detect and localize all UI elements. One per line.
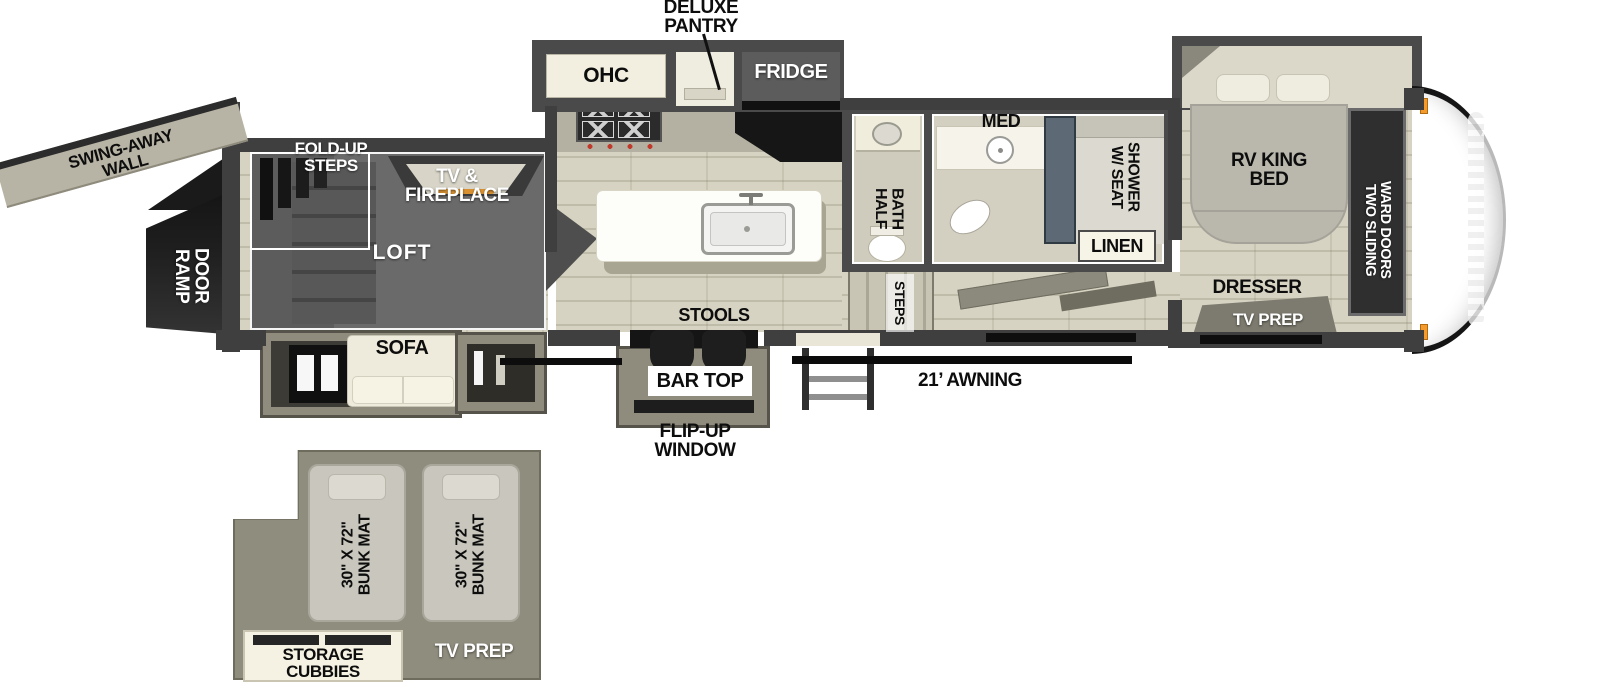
bar-bottom-counter <box>634 400 754 413</box>
fridge: FRIDGE <box>742 52 840 110</box>
sofa-slide-window <box>289 345 347 403</box>
bottom-wall-door-left <box>764 330 796 346</box>
bunk-mat-1-label: 30" X 72" BUNK MAT <box>308 496 406 614</box>
tv-fireplace-label: TV & FIREPLACE <box>390 162 524 210</box>
bedroom-left-wall-lower <box>1168 300 1182 348</box>
rear-compartment <box>455 332 547 414</box>
sofa-seat-split <box>402 376 404 404</box>
shower-seat-label: SHOWER W/ SEAT <box>1094 118 1154 236</box>
awning-line <box>792 356 1132 364</box>
half-bath-label: HALF BATH <box>866 166 910 252</box>
ohc-cabinet: OHC <box>546 54 666 98</box>
island-sink <box>701 203 795 255</box>
loft-label: LOFT <box>360 240 444 266</box>
kitchen-island <box>596 190 822 262</box>
storage-cubbies-label: STORAGE CUBBIES <box>245 644 401 682</box>
bedroom-wall-window <box>1200 335 1322 344</box>
front-cap <box>1412 86 1506 354</box>
compartment-window-1 <box>474 351 483 385</box>
entry-door-threshold <box>796 330 880 346</box>
pantry-shelf <box>684 88 726 100</box>
frontcap-join-top <box>1404 88 1424 110</box>
burner-3 <box>582 121 614 138</box>
stove-knobs <box>584 144 656 149</box>
dresser-label: DRESSER <box>1204 276 1310 300</box>
bunk-mat-1: 30" X 72" BUNK MAT <box>308 464 406 622</box>
pillow-1 <box>1216 74 1270 102</box>
shower-glass <box>1044 116 1076 244</box>
window-pane-1 <box>297 355 314 391</box>
stools-label: STOOLS <box>670 304 758 326</box>
bath-sink-drain <box>998 148 1003 153</box>
fridge-label: FRIDGE <box>742 52 840 92</box>
island-faucet-stem <box>749 193 753 205</box>
sofa-label: SOFA <box>352 336 452 360</box>
rv-king-bed-label: RV KING BED <box>1206 148 1332 192</box>
bunk-mat-2: 30" X 72" BUNK MAT <box>422 464 520 622</box>
main-top-wall <box>840 98 1180 110</box>
ward-doors-label: TWO SLIDING WARD DOORS <box>1350 150 1404 310</box>
ramp-door-label: RAMP DOOR <box>168 228 214 324</box>
pillow-2 <box>1276 74 1330 102</box>
ohc-label: OHC <box>547 55 665 97</box>
tv-prep-loft-label: TV PREP <box>426 640 522 664</box>
half-bath-sink <box>872 122 902 146</box>
bar-top-label-plate: BAR TOP <box>648 366 752 396</box>
bed-fold-line <box>1192 210 1346 212</box>
deluxe-pantry-cabinet <box>670 46 740 112</box>
fold-up-steps-label: FOLD-UP STEPS <box>268 136 394 178</box>
mid-wall-window <box>986 333 1136 342</box>
bunk-mat-2-label: 30" X 72" BUNK MAT <box>422 496 520 614</box>
med-label: MED <box>966 110 1036 132</box>
frontcap-texture <box>1468 112 1484 326</box>
sink-drain <box>744 226 750 232</box>
storage-cubbies-box: STORAGE CUBBIES <box>243 630 403 682</box>
window-pane-2 <box>321 355 338 391</box>
rear-awning-line <box>500 358 622 365</box>
linen-cabinet: LINEN <box>1078 230 1156 262</box>
awning-label: 21’ AWNING <box>902 368 1038 394</box>
deluxe-pantry-label: DELUXE PANTRY <box>652 0 750 34</box>
bath-toilet <box>943 193 996 242</box>
bottom-wall-rear-stub <box>238 330 266 346</box>
tv-prep-bedroom-label: TV PREP <box>1218 308 1318 332</box>
interior-steps-label: STEPS <box>886 274 914 332</box>
bedroom-left-wall <box>1168 108 1182 240</box>
floorplan-canvas: SWING-AWAY WALL RAMP DOOR FOLD-UP STEPS … <box>0 0 1600 694</box>
bed-slide-box <box>1172 36 1422 110</box>
frontcap-join-bottom <box>1404 330 1424 352</box>
bottom-wall-kitchen <box>548 330 620 346</box>
flip-up-window-label: FLIP-UP WINDOW <box>634 420 756 462</box>
burner-4 <box>618 121 650 138</box>
garage-kitchen-wall <box>545 106 557 252</box>
